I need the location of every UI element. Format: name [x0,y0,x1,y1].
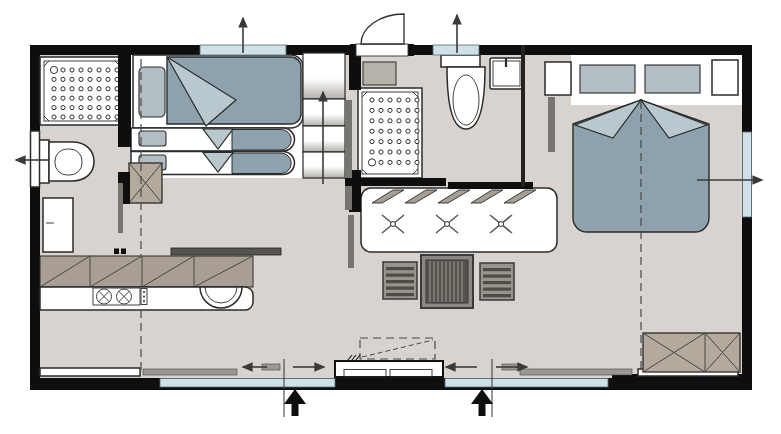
shower-dot [406,160,410,164]
entry-arrow-stem [292,403,299,416]
shower-dot [406,98,410,102]
nightstand-left [545,62,571,95]
shower-dot [88,106,92,110]
shower-dot [52,87,56,91]
knob-dot [143,296,145,298]
shower-dot [106,77,110,81]
wardrobe-x-right [643,333,740,372]
shower-dot [52,115,56,119]
shelf-cell [303,99,345,126]
shower-dot [406,119,410,123]
shower-dot [388,129,392,133]
shower-dot [370,119,374,123]
shower-dot [370,150,374,154]
bottom-window-left [160,379,335,388]
shower-dot [388,160,392,164]
entry-arrow-head [471,389,493,404]
shower-dot [61,87,65,91]
shower-dot [106,87,110,91]
nightstand-right [712,60,738,95]
shower-dot [79,87,83,91]
shower-dot [388,140,392,144]
shower-dot [70,96,74,100]
shower-dot [415,140,419,144]
shower-dot [61,115,65,119]
knob-dot [143,300,145,302]
shower-dot [388,108,392,112]
shower-dot [397,140,401,144]
shelf-cell [303,53,345,99]
bathroom-cabinet [363,62,396,85]
chair-slat [386,293,414,296]
entry-arrow-right [471,389,493,416]
shower-dot [415,160,419,164]
chair-slat [386,280,414,283]
shower-dot [379,98,383,102]
entry-arrow-stem [479,403,486,416]
counter-slab [171,248,281,255]
shower-dot [397,160,401,164]
shower-dot [79,106,83,110]
shower-dot [88,115,92,119]
x-mark-center [499,222,504,227]
shelf-unit [303,53,345,184]
shower-dot [106,106,110,110]
shower-dot [88,96,92,100]
shower-dot [415,108,419,112]
window-sill-left [143,369,237,375]
shower-dot [52,106,56,110]
door-jamb [350,44,356,56]
shower-dot [106,96,110,100]
kitchen [40,248,281,310]
bench-left [40,368,140,376]
shower-dot [97,115,101,119]
bed-left-pillow [139,67,165,117]
floor-plan-image [0,0,781,434]
x-mark-center [445,222,450,227]
single-bed-upper-blanket [232,130,291,151]
shower-dot [52,77,56,81]
kitchen-wall-cabinets [40,256,253,287]
shower-dot [397,108,401,112]
wall-tick [121,249,126,255]
shower-dot [79,77,83,81]
top-door [350,14,414,56]
shower-dot [406,150,410,154]
shower-dot [97,96,101,100]
shower-dot [88,77,92,81]
shower-dot [415,119,419,123]
wall-bathroom-south-right [448,182,533,189]
shower-dot [379,119,383,123]
shower-dot [106,115,110,119]
shower-dot [379,108,383,112]
shower-dot [406,140,410,144]
sliding-entrance-door [335,361,443,377]
shower-dot [97,77,101,81]
window-sill-right [520,369,632,375]
washbasin-left [43,198,73,252]
bottom-window-right [445,379,608,388]
shower-dot [379,160,383,164]
shower-dot [415,129,419,133]
shower-dot [79,115,83,119]
shower-dot [61,77,65,81]
pillow-left [580,65,635,93]
shower-dot [379,150,383,154]
entry-arrow-head [284,389,306,404]
shower-dot [379,140,383,144]
shower-dot [97,87,101,91]
x-mark-center [391,222,396,227]
left-wall-window [31,131,40,187]
entry-arrow-left [284,389,306,416]
door-threshold [356,44,408,56]
single-bed-upper-pillow [139,131,166,146]
chair-slat [386,274,414,277]
sliding-door-left-bathroom [118,183,123,233]
wall-bathroom-south-left [345,178,446,186]
sliding-door-hall [348,215,354,268]
chair-slat [386,287,414,290]
shower-dot [406,129,410,133]
shower-dot [368,159,375,166]
floor-plan-svg [0,0,781,434]
shower-dot [370,140,374,144]
single-bed-lower-blanket [232,153,291,174]
shower-dot [52,96,56,100]
shower-dot [415,150,419,154]
shower-dot [97,68,101,72]
sliding-door-right-bedroom [548,97,555,152]
pillow-right [645,65,700,93]
right-wall-window [743,132,752,217]
toilet-middle-cistern [441,55,480,67]
door-jamb [408,44,414,56]
shower-dot [88,87,92,91]
shower-dot [61,68,65,72]
knob-dot [143,291,145,293]
chair-slat [483,288,511,291]
shower-dot [79,68,83,72]
shower-dot [70,106,74,110]
door-threshold-black [337,378,443,387]
shower-dot [397,119,401,123]
wall-left-bathroom [118,55,131,147]
sliding-door-middle-bathroom [345,100,352,210]
shower-dot [397,98,401,102]
shower-dot [50,66,57,73]
shower-dot [388,119,392,123]
shower-dot [415,98,419,102]
chair-slat [483,268,511,271]
chair-slat [483,275,511,278]
shower-dot [79,96,83,100]
shower-dot [88,68,92,72]
shower-dot [70,87,74,91]
shelf-cell [303,152,345,178]
top-window-middle [433,45,479,55]
shower-dot [397,129,401,133]
shower-dot [370,108,374,112]
shower-dot [388,150,392,154]
chair-slat [386,267,414,270]
shower-dot [97,106,101,110]
shower-dot [388,98,392,102]
shower-dot [70,77,74,81]
shower-dot [70,115,74,119]
shower-dot [406,108,410,112]
shower-dot [397,150,401,154]
wall-bathroom-east [521,45,525,187]
shower-dot [370,98,374,102]
chair-slat [483,294,511,297]
shower-dot [370,129,374,133]
shelf-cell [303,126,345,152]
wall-tick [114,249,119,255]
shower-dot [106,68,110,72]
door-swing [361,14,404,44]
shower-dot [70,68,74,72]
shower-dot [379,129,383,133]
shower-dot [61,96,65,100]
shower-dot [61,106,65,110]
chair-slat [483,281,511,284]
